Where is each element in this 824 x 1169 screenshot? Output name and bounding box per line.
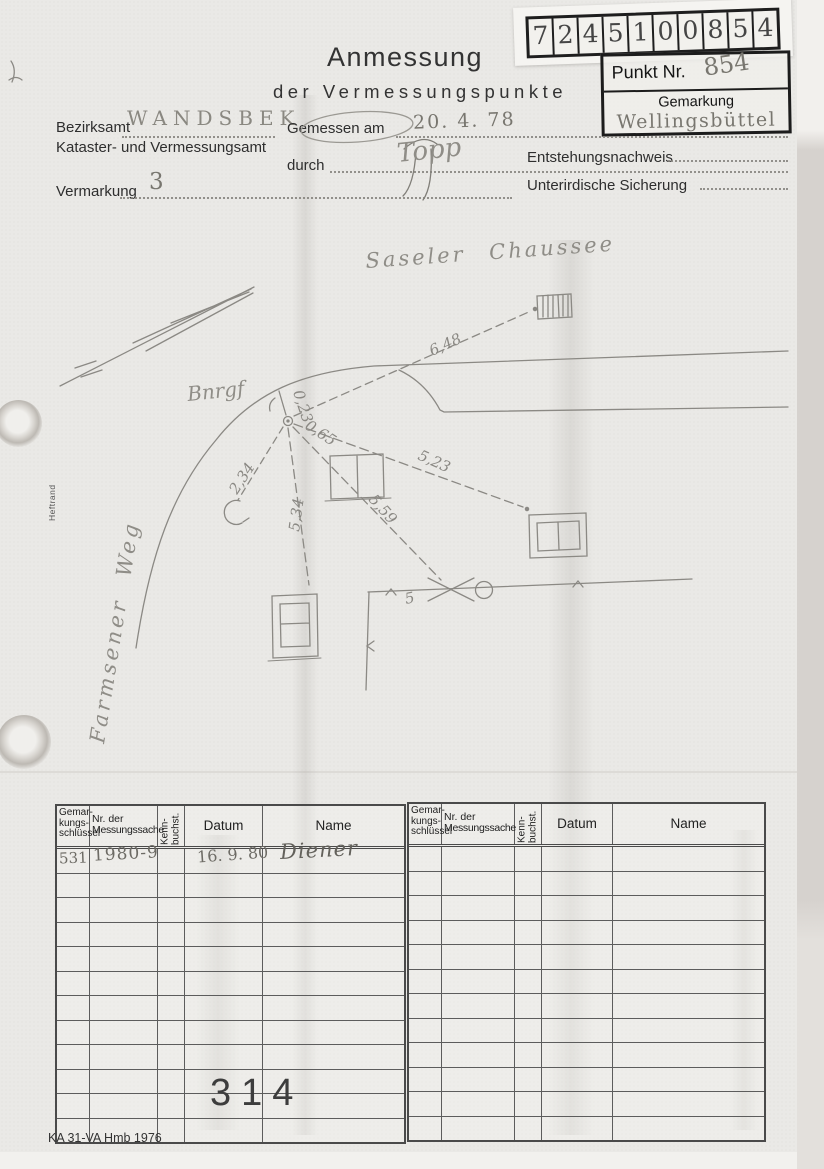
table-cell [90,996,158,1020]
header-name: Name [613,804,764,844]
durch-label: durch [287,157,325,174]
header-datum: Datum [185,806,263,846]
table-cell [515,1043,542,1067]
table-cell [185,1119,263,1143]
punkt-nr-label: Punkt Nr. [611,61,685,83]
gemessen-value: 20. 4. 78 [413,108,516,134]
table-cell [185,972,263,996]
table-cell [442,1092,515,1116]
table-cell [442,1019,515,1043]
digit-cell: 2 [553,18,579,55]
table-row [409,1092,764,1117]
table-cell [90,972,158,996]
table-row [57,947,404,972]
durch-line [330,171,788,173]
table-cell [442,921,515,945]
table-row [409,994,764,1019]
table-cell [409,1019,442,1043]
table-cell [515,970,542,994]
scan-edge-bottom [0,1152,797,1169]
table-row [409,1117,764,1141]
table-cell [57,1021,90,1045]
table-row [409,1043,764,1068]
table-cell [263,996,404,1020]
table-cell [263,923,404,947]
table-cell [542,921,613,945]
header-gemarkungsschluessel: Gemar-kungs-schlüssel [57,806,90,846]
table-cell [57,874,90,898]
table-cell [613,970,764,994]
table-cell [542,872,613,896]
table-cell [442,896,515,920]
entry-messungssache: 1980-9 [93,842,160,865]
punkt-nr-row: Punkt Nr. 854 [603,53,788,92]
table-row [57,996,404,1021]
table-row [409,847,764,872]
table-cell [263,947,404,971]
table-cell [542,945,613,969]
table-cell [613,1068,764,1092]
table-cell [442,847,515,871]
table-cell [542,1019,613,1043]
point-id-box: Punkt Nr. 854 Gemarkung Wellingsbüttel [600,50,791,136]
table-cell [90,1094,158,1118]
table-cell [90,947,158,971]
unterirdische-sicherung-label: Unterirdische Sicherung [527,177,687,194]
table-cell [263,1045,404,1069]
table-cell [57,972,90,996]
table-cell [185,898,263,922]
table-cell [515,945,542,969]
table-cell [90,923,158,947]
table-cell [90,1021,158,1045]
table-cell [185,923,263,947]
table-row [409,1068,764,1093]
table-cell [57,923,90,947]
bezirksamt-value: WANDSBEK [127,106,300,130]
table-row [409,1019,764,1044]
table-cell [442,1117,515,1141]
table-cell [409,921,442,945]
table-cell [158,898,185,922]
table-cell [57,1045,90,1069]
table-cell [158,1045,185,1069]
unterirdische-sicherung-line [700,188,788,190]
entstehungsnachweis-label: Entstehungsnachweis [527,149,673,166]
digit-cell: 4 [753,11,777,48]
table-cell [409,872,442,896]
bezirksamt-line [122,136,275,138]
table-row [409,970,764,995]
table-cell [409,945,442,969]
table-cell [613,1092,764,1116]
digit-cell: 8 [703,12,729,49]
table-cell [57,1070,90,1094]
table-body [409,847,764,1140]
table-cell [442,994,515,1018]
vermarkung-line [120,197,512,199]
header-kennbuchstabe: Kenn-buchst. [515,804,542,844]
digit-cell: 4 [578,17,604,54]
vermarkung-value: 3 [149,169,164,195]
kataster-label: Kataster- und Vermessungsamt [56,139,266,156]
header-kennbuchstabe: Kenn-buchst. [158,806,185,846]
table-cell [542,1117,613,1141]
table-cell [515,847,542,871]
table-cell [263,1119,404,1143]
table-row [409,896,764,921]
table-cell [442,872,515,896]
digit-cell: 7 [528,18,554,55]
table-cell [185,1045,263,1069]
table-cell [158,1119,185,1143]
table-cell [90,1045,158,1069]
table-row [57,1021,404,1046]
gemessen-label: Gemessen am [287,120,385,137]
table-cell [613,994,764,1018]
table-row [409,921,764,946]
digit-cell: 1 [628,15,654,52]
table-cell [613,945,764,969]
entry-name-signature: Diener [279,836,358,864]
digit-cell: 0 [678,13,704,50]
table-cell [542,994,613,1018]
form-subtitle: der Vermessungspunkte [245,81,595,103]
table-cell [158,1094,185,1118]
table-cell [158,996,185,1020]
table-cell [542,1043,613,1067]
table-cell [442,1068,515,1092]
table-cell [263,874,404,898]
table-cell [409,1068,442,1092]
table-cell [57,898,90,922]
table-cell [613,1117,764,1141]
table-cell [515,896,542,920]
table-cell [158,1070,185,1094]
table-cell [263,1021,404,1045]
table-cell [442,945,515,969]
table-cell [409,896,442,920]
table-cell [263,898,404,922]
table-cell [542,896,613,920]
table-cell [515,1092,542,1116]
table-cell [158,874,185,898]
table-row [57,874,404,899]
scan-edge-right [797,0,824,1169]
scanned-survey-form: Anmessung der Vermessungspunkte 7 2 4 5 … [0,0,824,1169]
table-cell [542,970,613,994]
table-cell [185,874,263,898]
punkt-nr-value: 854 [702,47,751,81]
table-cell [158,972,185,996]
fold-crease [0,771,797,773]
gemessen-line [396,136,788,138]
ledger-table-right: Gemar-kungs-schlüssel Nr. derMessungssac… [407,802,766,1142]
gemarkung-row: Gemarkung Wellingsbüttel [604,92,789,133]
table-cell [542,847,613,871]
header-gemarkungsschluessel: Gemar-kungs-schlüssel [409,804,442,844]
table-cell [409,1043,442,1067]
table-cell [542,1068,613,1092]
form-code: KA 31-VA Hmb 1976 [48,1131,162,1145]
table-cell [158,923,185,947]
table-cell [57,947,90,971]
table-cell [515,1019,542,1043]
table-cell [185,947,263,971]
header-messungssache: Nr. derMessungssache [90,806,158,846]
table-header-row: Gemar-kungs-schlüssel Nr. derMessungssac… [409,804,764,847]
table-cell [185,996,263,1020]
gemarkung-value: Wellingsbüttel [604,108,788,133]
table-cell [613,1019,764,1043]
header-datum: Datum [542,804,613,844]
table-cell [263,972,404,996]
table-cell [613,847,764,871]
header-messungssache: Nr. derMessungssache [442,804,515,844]
table-cell [613,872,764,896]
table-cell [409,994,442,1018]
table-cell [158,849,185,873]
table-cell [90,1070,158,1094]
table-cell [613,1043,764,1067]
table-row [57,1045,404,1070]
table-cell [442,1043,515,1067]
bezirksamt-label: Bezirksamt [56,119,130,136]
table-cell [409,847,442,871]
table-cell [613,921,764,945]
table-cell [57,996,90,1020]
stamp-314: 314 [210,1072,303,1115]
table-row [409,945,764,970]
entry-gemarkungsschluessel: 531 [59,849,88,868]
table-row [57,972,404,997]
digit-cell: 0 [653,14,679,51]
table-cell [542,1092,613,1116]
table-cell [409,1117,442,1141]
table-cell [158,947,185,971]
entstehungsnachweis-line [668,160,788,162]
table-cell [515,921,542,945]
table-row [57,898,404,923]
table-cell [90,898,158,922]
table-cell [442,970,515,994]
table-cell [409,970,442,994]
table-cell [185,1021,263,1045]
table-cell [57,1094,90,1118]
table-cell [158,1021,185,1045]
digit-cell: 5 [603,16,629,53]
table-row [409,872,764,897]
table-cell [515,1068,542,1092]
table-cell [515,1117,542,1141]
table-cell [515,872,542,896]
table-row [57,923,404,948]
table-cell [613,896,764,920]
table-cell [515,994,542,1018]
digit-cell: 5 [728,11,754,48]
table-cell [409,1092,442,1116]
table-cell [90,874,158,898]
